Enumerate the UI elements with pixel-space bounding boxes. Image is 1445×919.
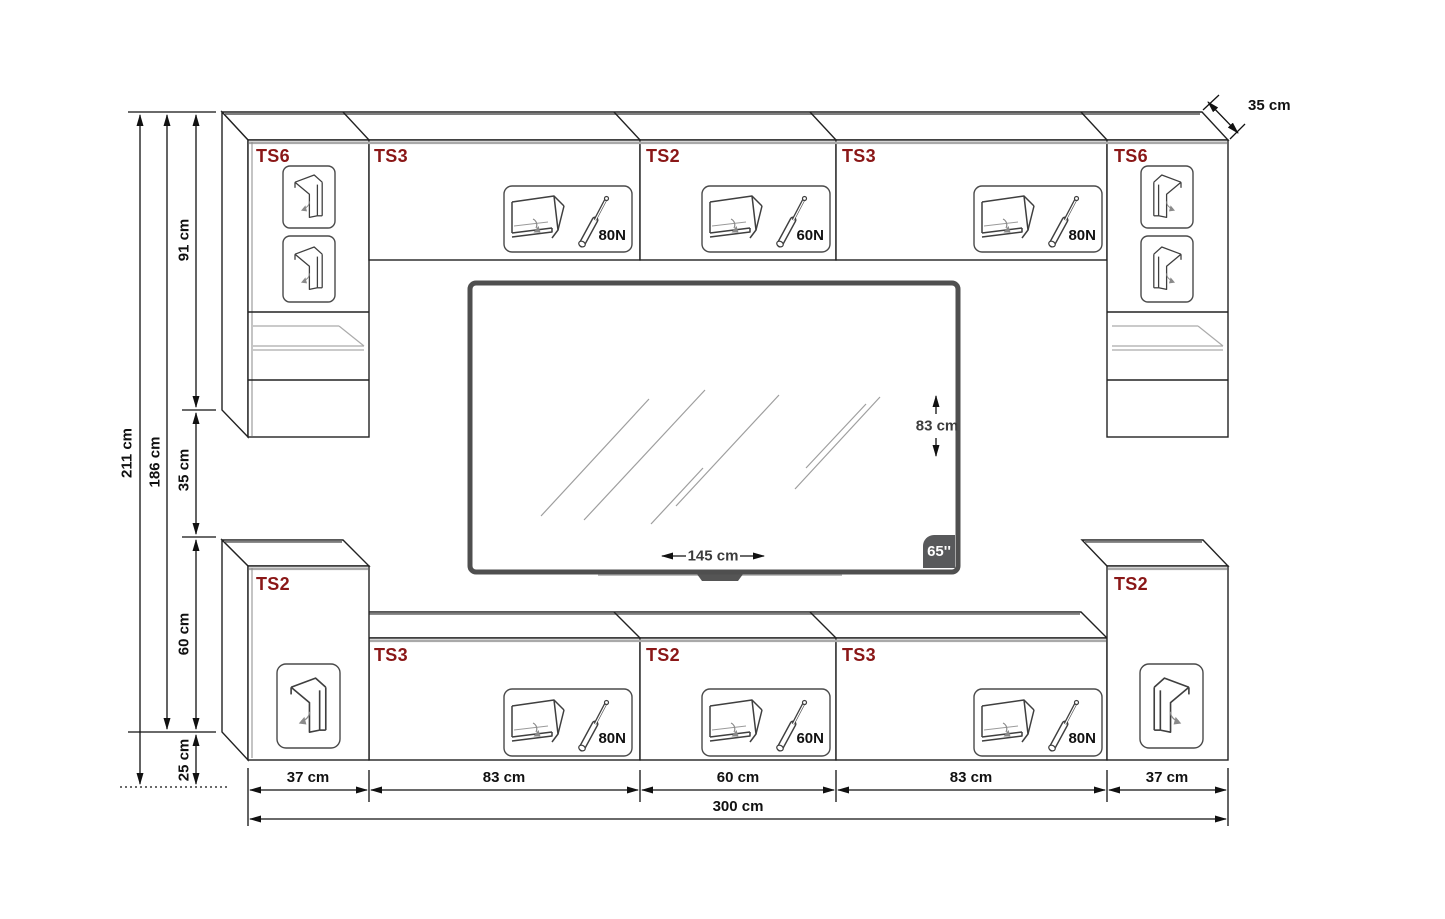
dim-depth: 35 cm xyxy=(1248,97,1291,114)
strut-force-label: 80N xyxy=(582,227,626,244)
dim-total-height: 211 cm xyxy=(119,428,136,478)
cabinet-label-bottom-ts2-right: TS2 xyxy=(1114,574,1148,595)
strut-force-label: 80N xyxy=(1052,227,1096,244)
cabinet-label-top-ts6-left: TS6 xyxy=(256,146,290,167)
cabinet-label-top-ts3-right: TS3 xyxy=(842,146,876,167)
strut-force-label: 60N xyxy=(780,227,824,244)
cabinet-label-top-ts3-left: TS3 xyxy=(374,146,408,167)
cabinet-label-bottom-ts2-left: TS2 xyxy=(256,574,290,595)
tv-width-label: 145 cm xyxy=(688,548,739,565)
tv-diagonal-label: 65'' xyxy=(921,543,957,560)
cabinet-label-bottom-ts2-mid: TS2 xyxy=(646,645,680,666)
dim-floor-clearance: 25 cm xyxy=(176,739,193,782)
furniture-dimension-diagram: TS6 TS3 TS2 TS3 TS6 TS2 TS3 TS2 TS3 TS2 … xyxy=(0,0,1445,919)
cabinet-label-bottom-ts3-right: TS3 xyxy=(842,645,876,666)
tv xyxy=(470,283,958,581)
tv-height-label: 83 cm xyxy=(916,418,959,435)
dim-segment-1: 37 cm xyxy=(287,769,330,786)
cabinet-label-top-ts2: TS2 xyxy=(646,146,680,167)
door-icon xyxy=(1140,664,1203,748)
dim-upper-height: 91 cm xyxy=(176,219,193,262)
strut-force-label: 60N xyxy=(780,730,824,747)
dim-segment-3: 60 cm xyxy=(717,769,760,786)
strut-force-label: 80N xyxy=(1052,730,1096,747)
strut-force-label: 80N xyxy=(582,730,626,747)
cabinet-label-bottom-ts3-left: TS3 xyxy=(374,645,408,666)
dim-lower-height: 60 cm xyxy=(176,613,193,656)
dim-unit-height: 186 cm xyxy=(147,437,164,488)
dim-middle-gap: 35 cm xyxy=(176,449,193,492)
dim-segment-5: 37 cm xyxy=(1146,769,1189,786)
tv-screen xyxy=(470,283,958,572)
dim-segment-4: 83 cm xyxy=(950,769,993,786)
cabinet-label-top-ts6-right: TS6 xyxy=(1114,146,1148,167)
door-icon xyxy=(277,664,340,748)
dim-total-width: 300 cm xyxy=(713,798,764,815)
dim-segment-2: 83 cm xyxy=(483,769,526,786)
